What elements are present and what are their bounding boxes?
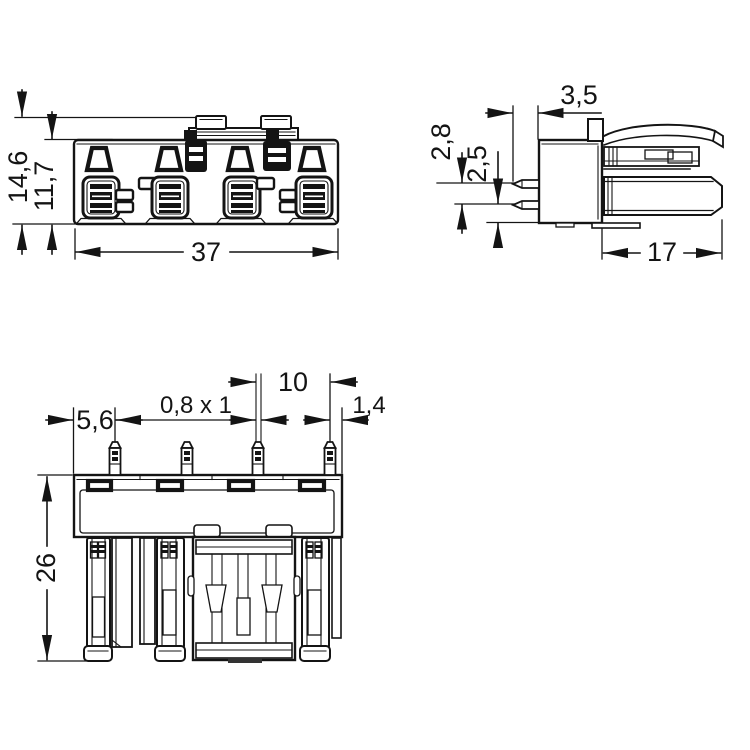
side-foot xyxy=(592,223,640,228)
side-body-outline xyxy=(539,140,602,223)
bottom-solder-pins xyxy=(110,442,336,475)
bottom-lever-section xyxy=(84,537,341,663)
dim-label-edge-to-pin: 5,6 xyxy=(76,405,114,435)
dim-label-pin-to-edge: 1,4 xyxy=(352,392,385,419)
solder-pin-row-1 xyxy=(513,180,539,188)
dim-label-body-height: 11,7 xyxy=(29,161,59,212)
dim-label-depth: 17 xyxy=(647,237,677,267)
latch-tab-left xyxy=(196,116,226,129)
dim-label-pin-protrusion: 3,5 xyxy=(560,80,598,110)
dim-label-pin-cross-section: 0,8 x 1 xyxy=(160,392,232,419)
slot-3 xyxy=(229,481,253,490)
pole-opening-1 xyxy=(87,148,111,170)
front-view: 14,6 11,7 37 xyxy=(3,90,338,267)
slot-4 xyxy=(300,481,324,490)
side-plug-section xyxy=(604,177,722,215)
drawing-canvas: 14,6 11,7 37 xyxy=(0,0,750,750)
dim-label-pin-row-bottom: 2,5 xyxy=(462,145,492,183)
pole-opening-4 xyxy=(300,148,324,170)
solder-pin-row-2 xyxy=(513,201,539,209)
side-view: 3,5 2,8 2,5 17 xyxy=(426,80,723,267)
pole-opening-2 xyxy=(157,148,181,170)
side-solder-pins xyxy=(513,180,539,209)
dim-label-pin-row-spacing: 2,8 xyxy=(426,123,456,161)
slot-2 xyxy=(158,481,182,490)
side-latch xyxy=(604,125,723,169)
technical-drawing-page: 14,6 11,7 37 xyxy=(0,0,750,750)
dim-label-width: 37 xyxy=(191,237,221,267)
latch-tab-right xyxy=(261,116,291,129)
side-top-post xyxy=(588,119,603,141)
front-strain-relief-latch xyxy=(189,116,298,140)
dim-label-pin-pitch: 10 xyxy=(278,367,308,397)
pole-opening-3 xyxy=(228,148,252,170)
slot-1 xyxy=(88,481,111,490)
bottom-view: 10 5,6 0,8 x 1 1,4 26 xyxy=(31,367,386,663)
dim-label-total-length: 26 xyxy=(31,553,61,583)
